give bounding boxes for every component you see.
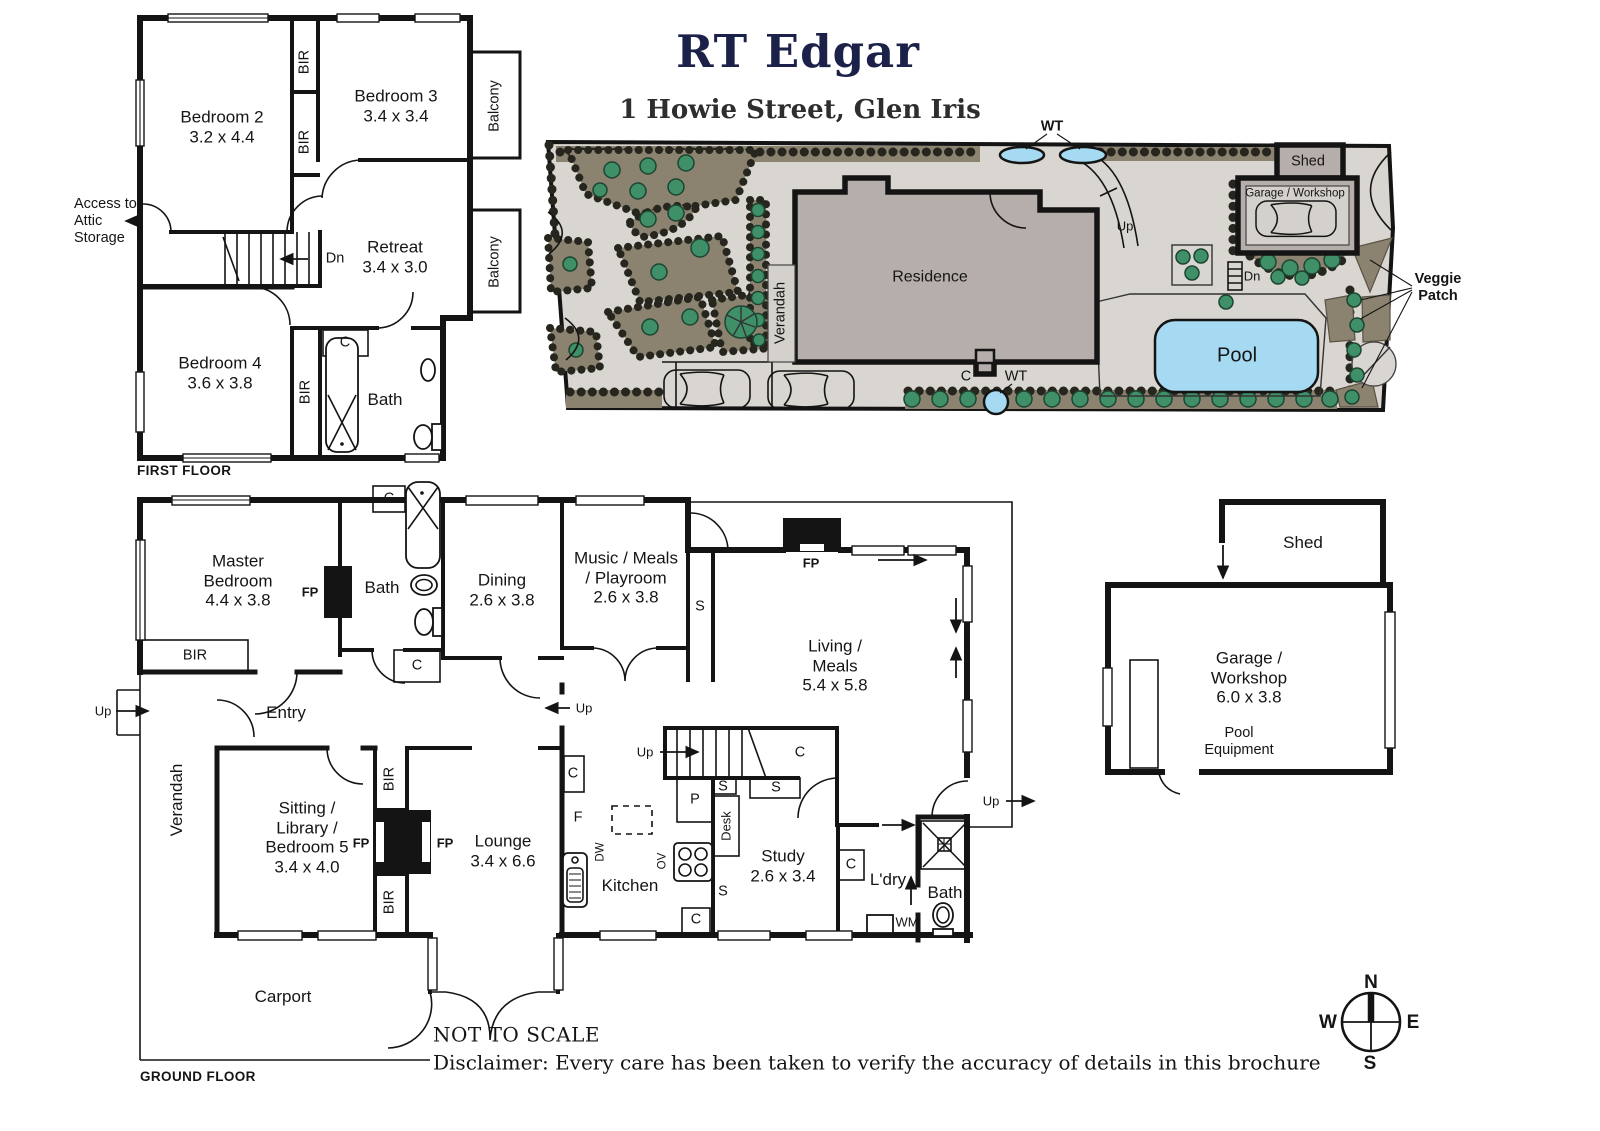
- toilet: [415, 608, 442, 636]
- shower: [921, 821, 968, 869]
- basin: [411, 575, 437, 595]
- floorplan-page: RT Edgar 1 Howie Street, Glen Iris Bedro…: [0, 0, 1600, 1131]
- kitchen-sink: [563, 853, 587, 907]
- residence-building: [795, 178, 1097, 374]
- site-plan: [548, 134, 1412, 414]
- water-tank-round: [984, 390, 1008, 414]
- basin: [421, 359, 435, 381]
- water-tank: [1060, 147, 1106, 163]
- plan-drawing: [0, 0, 1600, 1131]
- stairs-up: [677, 728, 766, 778]
- washing-machine: [867, 915, 893, 933]
- first-floor-plan: [126, 14, 520, 462]
- site-verandah: [768, 265, 795, 362]
- bathtub: [326, 338, 358, 452]
- toilet: [933, 903, 953, 936]
- pool: [1155, 320, 1318, 392]
- toilet: [414, 424, 442, 450]
- ground-floor-plan: [116, 482, 1034, 1060]
- water-tank: [1000, 147, 1044, 163]
- bathtub: [406, 482, 440, 568]
- compass: [1342, 993, 1400, 1051]
- outbuilding-plan: [1103, 502, 1395, 794]
- site-shed: [1277, 145, 1343, 178]
- stove: [674, 843, 712, 881]
